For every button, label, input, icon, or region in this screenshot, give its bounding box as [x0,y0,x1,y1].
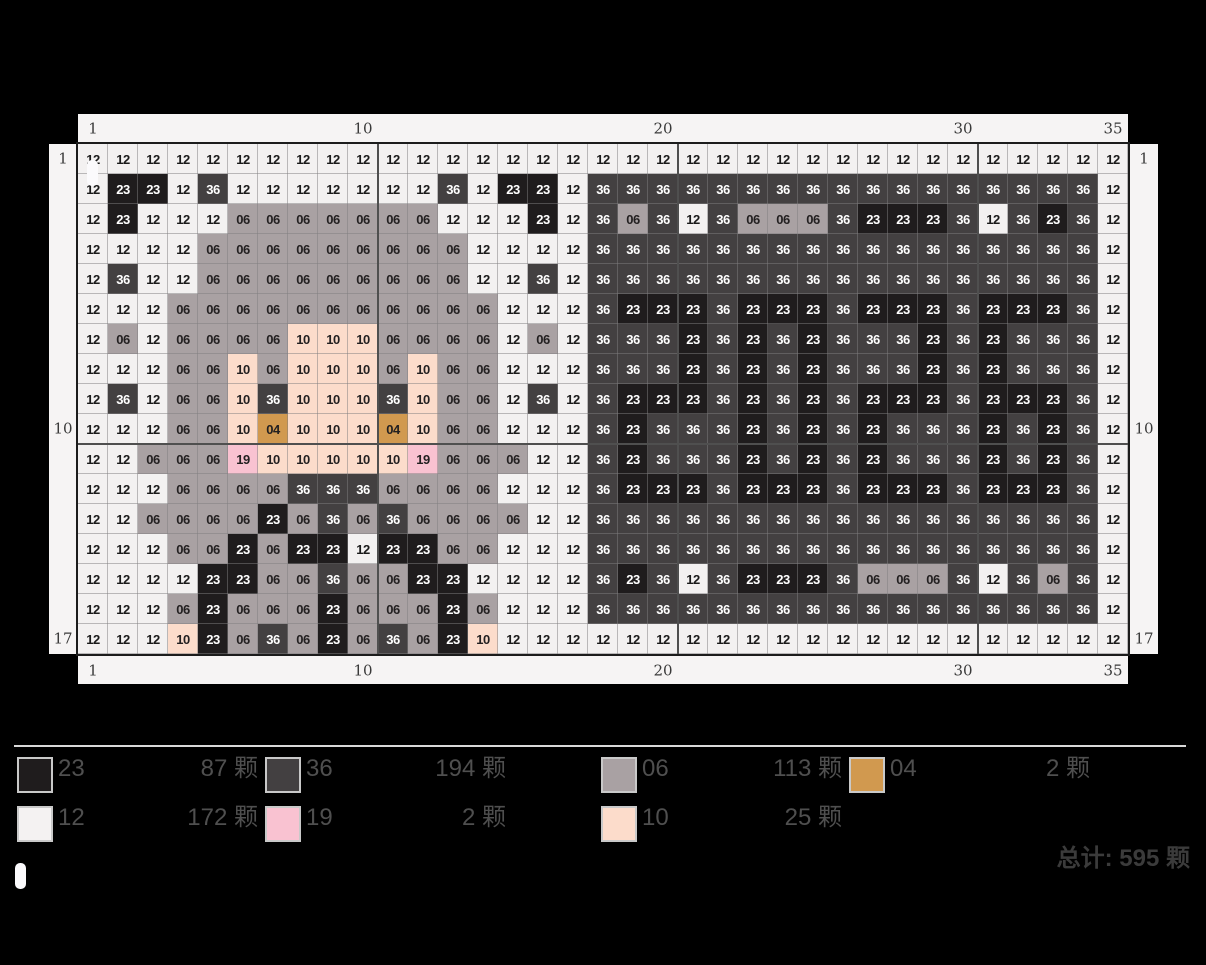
bead-cell[interactable]: 06 [138,444,168,474]
bead-cell[interactable]: 12 [888,624,918,654]
bead-cell[interactable]: 06 [168,504,198,534]
bead-cell[interactable]: 36 [888,534,918,564]
bead-cell[interactable]: 23 [888,384,918,414]
bead-cell[interactable]: 12 [198,204,228,234]
legend-swatch-19[interactable] [265,806,301,842]
bead-cell[interactable]: 12 [108,354,138,384]
bead-cell[interactable]: 36 [378,624,408,654]
bead-cell[interactable]: 23 [1038,294,1068,324]
bead-cell[interactable]: 36 [798,594,828,624]
bead-cell[interactable]: 06 [318,234,348,264]
bead-cell[interactable]: 36 [618,534,648,564]
bead-cell[interactable]: 12 [498,204,528,234]
bead-cell[interactable]: 12 [78,534,108,564]
bead-cell[interactable]: 23 [768,294,798,324]
bead-cell[interactable]: 23 [1038,384,1068,414]
bead-cell[interactable]: 12 [558,594,588,624]
bead-cell[interactable]: 06 [468,474,498,504]
bead-cell[interactable]: 36 [1038,324,1068,354]
bead-cell[interactable]: 23 [738,444,768,474]
bead-cell[interactable]: 06 [768,204,798,234]
bead-cell[interactable]: 06 [288,594,318,624]
bead-cell[interactable]: 12 [288,174,318,204]
bead-cell[interactable]: 12 [948,624,978,654]
bead-cell[interactable]: 36 [708,504,738,534]
bead-cell[interactable]: 12 [528,414,558,444]
bead-cell[interactable]: 12 [558,264,588,294]
bead-cell[interactable]: 12 [498,384,528,414]
bead-cell[interactable]: 12 [318,144,348,174]
bead-cell[interactable]: 12 [1098,504,1128,534]
bead-cell[interactable]: 12 [528,354,558,384]
bead-cell[interactable]: 12 [528,564,558,594]
bead-cell[interactable]: 36 [948,204,978,234]
bead-cell[interactable]: 23 [858,384,888,414]
bead-cell[interactable]: 12 [1068,144,1098,174]
bead-cell[interactable]: 06 [468,594,498,624]
bead-cell[interactable]: 36 [1068,504,1098,534]
bead-cell[interactable]: 06 [198,474,228,504]
bead-cell[interactable]: 23 [798,294,828,324]
bead-cell[interactable]: 06 [228,474,258,504]
bead-cell[interactable]: 36 [738,234,768,264]
bead-cell[interactable]: 12 [528,474,558,504]
bead-cell[interactable]: 12 [498,564,528,594]
bead-cell[interactable]: 36 [588,444,618,474]
bead-cell[interactable]: 06 [258,534,288,564]
bead-cell[interactable]: 06 [438,324,468,354]
bead-cell[interactable]: 06 [258,234,288,264]
bead-cell[interactable]: 06 [198,384,228,414]
bead-cell[interactable]: 06 [438,444,468,474]
bead-cell[interactable]: 23 [528,204,558,234]
bead-cell[interactable]: 06 [318,204,348,234]
bead-cell[interactable]: 36 [618,354,648,384]
bead-cell[interactable]: 10 [408,354,438,384]
bead-cell[interactable]: 36 [1008,324,1038,354]
bead-cell[interactable]: 12 [558,144,588,174]
bead-cell[interactable]: 12 [78,204,108,234]
bead-cell[interactable]: 23 [678,474,708,504]
bead-cell[interactable]: 06 [408,474,438,504]
bead-cell[interactable]: 06 [228,234,258,264]
bead-cell[interactable]: 06 [378,354,408,384]
bead-cell[interactable]: 12 [858,144,888,174]
bead-cell[interactable]: 06 [498,504,528,534]
bead-cell[interactable]: 36 [1068,564,1098,594]
bead-cell[interactable]: 06 [288,234,318,264]
bead-cell[interactable]: 06 [438,474,468,504]
bead-cell[interactable]: 23 [648,474,678,504]
bead-cell[interactable]: 12 [528,294,558,324]
bead-cell[interactable]: 06 [258,264,288,294]
bead-cell[interactable]: 10 [348,384,378,414]
bead-cell[interactable]: 23 [678,294,708,324]
bead-cell[interactable]: 12 [858,624,888,654]
bead-cell[interactable]: 06 [798,204,828,234]
bead-cell[interactable]: 36 [888,354,918,384]
bead-cell[interactable]: 23 [798,324,828,354]
bead-cell[interactable]: 23 [198,594,228,624]
bead-cell[interactable]: 12 [408,174,438,204]
bead-cell[interactable]: 36 [918,534,948,564]
bead-cell[interactable]: 36 [588,354,618,384]
bead-cell[interactable]: 12 [438,204,468,234]
bead-cell[interactable]: 12 [78,384,108,414]
bead-cell[interactable]: 36 [948,534,978,564]
bead-cell[interactable]: 12 [138,264,168,294]
bead-cell[interactable]: 06 [348,294,378,324]
bead-cell[interactable]: 06 [228,594,258,624]
bead-cell[interactable]: 12 [78,624,108,654]
bead-cell[interactable]: 12 [138,384,168,414]
bead-cell[interactable]: 36 [768,594,798,624]
bead-cell[interactable]: 12 [1098,444,1128,474]
bead-cell[interactable]: 12 [498,414,528,444]
bead-cell[interactable]: 36 [1008,414,1038,444]
bead-cell[interactable]: 23 [1008,384,1038,414]
bead-cell[interactable]: 36 [678,414,708,444]
bead-cell[interactable]: 36 [768,504,798,534]
bead-cell[interactable]: 36 [678,534,708,564]
bead-cell[interactable]: 36 [708,264,738,294]
bead-cell[interactable]: 12 [288,144,318,174]
bead-cell[interactable]: 36 [948,234,978,264]
bead-cell[interactable]: 23 [978,294,1008,324]
bead-cell[interactable]: 23 [738,324,768,354]
bead-cell[interactable]: 06 [468,354,498,384]
bead-cell[interactable]: 12 [648,624,678,654]
bead-cell[interactable]: 12 [528,504,558,534]
bead-cell[interactable]: 36 [1068,174,1098,204]
bead-cell[interactable]: 36 [678,504,708,534]
bead-cell[interactable]: 36 [948,444,978,474]
bead-cell[interactable]: 10 [288,444,318,474]
bead-cell[interactable]: 12 [348,144,378,174]
bead-cell[interactable]: 36 [258,624,288,654]
bead-cell[interactable]: 06 [438,384,468,414]
bead-cell[interactable]: 36 [738,594,768,624]
bead-cell[interactable]: 06 [528,324,558,354]
bead-cell[interactable]: 36 [1068,294,1098,324]
bead-cell[interactable]: 36 [738,504,768,534]
bead-cell[interactable]: 36 [768,324,798,354]
bead-cell[interactable]: 36 [648,444,678,474]
bead-cell[interactable]: 10 [318,444,348,474]
bead-cell[interactable]: 06 [348,234,378,264]
bead-cell[interactable]: 23 [978,474,1008,504]
bead-cell[interactable]: 12 [1098,384,1128,414]
bead-cell[interactable]: 36 [1068,444,1098,474]
bead-cell[interactable]: 23 [318,534,348,564]
bead-cell[interactable]: 36 [858,354,888,384]
bead-cell[interactable]: 23 [138,174,168,204]
legend-swatch-36[interactable] [265,757,301,793]
legend-swatch-06[interactable] [601,757,637,793]
bead-cell[interactable]: 23 [108,204,138,234]
bead-cell[interactable]: 23 [858,294,888,324]
bead-cell[interactable]: 23 [678,384,708,414]
bead-cell[interactable]: 36 [318,564,348,594]
bead-cell[interactable]: 10 [168,624,198,654]
bead-cell[interactable]: 06 [498,444,528,474]
bead-cell[interactable]: 06 [858,564,888,594]
bead-cell[interactable]: 06 [438,354,468,384]
bead-cell[interactable]: 12 [168,564,198,594]
bead-cell[interactable]: 36 [648,174,678,204]
bead-cell[interactable]: 12 [648,144,678,174]
bead-cell[interactable]: 06 [918,564,948,594]
bead-cell[interactable]: 36 [258,384,288,414]
bead-cell[interactable]: 36 [648,264,678,294]
bead-cell[interactable]: 12 [468,174,498,204]
bead-cell[interactable]: 12 [1038,624,1068,654]
bead-cell[interactable]: 06 [468,504,498,534]
bead-cell[interactable]: 12 [558,534,588,564]
bead-cell[interactable]: 23 [768,564,798,594]
bead-cell[interactable]: 12 [498,624,528,654]
bead-cell[interactable]: 12 [618,624,648,654]
bead-cell[interactable]: 36 [1008,564,1038,594]
bead-cell[interactable]: 36 [438,174,468,204]
bead-cell[interactable]: 12 [558,444,588,474]
bead-cell[interactable]: 36 [528,264,558,294]
bead-cell[interactable]: 36 [888,324,918,354]
bead-cell[interactable]: 06 [168,294,198,324]
bead-cell[interactable]: 12 [1098,324,1128,354]
bead-cell[interactable]: 12 [1008,624,1038,654]
bead-cell[interactable]: 06 [258,474,288,504]
bead-cell[interactable]: 06 [198,534,228,564]
bead-cell[interactable]: 12 [108,594,138,624]
bead-cell[interactable]: 12 [558,174,588,204]
bead-cell[interactable]: 06 [168,384,198,414]
bead-cell[interactable]: 06 [738,204,768,234]
bead-cell[interactable]: 12 [468,144,498,174]
bead-cell[interactable]: 12 [768,144,798,174]
bead-cell[interactable]: 06 [378,594,408,624]
bead-cell[interactable]: 12 [948,144,978,174]
bead-cell[interactable]: 06 [198,354,228,384]
bead-cell[interactable]: 06 [228,264,258,294]
bead-cell[interactable]: 06 [408,624,438,654]
bead-cell[interactable]: 12 [1098,564,1128,594]
bead-cell[interactable]: 12 [1038,144,1068,174]
bead-cell[interactable]: 36 [828,474,858,504]
bead-cell[interactable]: 06 [618,204,648,234]
bead-cell[interactable]: 06 [258,294,288,324]
bead-cell[interactable]: 06 [228,324,258,354]
bead-cell[interactable]: 12 [528,594,558,624]
bead-cell[interactable]: 10 [348,354,378,384]
bead-cell[interactable]: 23 [978,354,1008,384]
bead-cell[interactable]: 06 [198,414,228,444]
bead-cell[interactable]: 36 [888,444,918,474]
bead-cell[interactable]: 23 [978,414,1008,444]
bead-cell[interactable]: 36 [768,414,798,444]
bead-cell[interactable]: 12 [738,144,768,174]
bead-cell[interactable]: 36 [918,174,948,204]
bead-cell[interactable]: 23 [438,564,468,594]
bead-cell[interactable]: 12 [558,294,588,324]
bead-cell[interactable]: 23 [618,474,648,504]
bead-cell[interactable]: 06 [378,264,408,294]
bead-cell[interactable]: 36 [828,174,858,204]
bead-cell[interactable]: 36 [918,414,948,444]
bead-cell[interactable]: 36 [768,354,798,384]
bead-cell[interactable]: 36 [948,504,978,534]
bead-cell[interactable]: 36 [588,414,618,444]
bead-cell[interactable]: 12 [498,264,528,294]
bead-cell[interactable]: 12 [138,534,168,564]
bead-cell[interactable]: 06 [408,504,438,534]
bead-cell[interactable]: 06 [348,264,378,294]
bead-cell[interactable]: 36 [588,324,618,354]
bead-cell[interactable]: 12 [138,324,168,354]
bead-cell[interactable]: 36 [1068,594,1098,624]
bead-cell[interactable]: 10 [288,414,318,444]
bead-cell[interactable]: 36 [528,384,558,414]
bead-cell[interactable]: 23 [288,534,318,564]
bead-cell[interactable]: 36 [768,234,798,264]
bead-cell[interactable]: 23 [618,564,648,594]
bead-cell[interactable]: 12 [78,294,108,324]
bead-cell[interactable]: 36 [1068,204,1098,234]
bead-cell[interactable]: 12 [558,414,588,444]
bead-cell[interactable]: 36 [648,504,678,534]
bead-cell[interactable]: 12 [198,144,228,174]
bead-cell[interactable]: 12 [168,204,198,234]
bead-cell[interactable]: 12 [588,144,618,174]
bead-cell[interactable]: 36 [828,504,858,534]
bead-cell[interactable]: 36 [618,174,648,204]
bead-cell[interactable]: 19 [228,444,258,474]
bead-cell[interactable]: 12 [468,234,498,264]
bead-cell[interactable]: 06 [198,504,228,534]
bead-cell[interactable]: 12 [78,504,108,534]
bead-cell[interactable]: 23 [738,564,768,594]
bead-cell[interactable]: 12 [468,264,498,294]
bead-cell[interactable]: 12 [1098,414,1128,444]
bead-cell[interactable]: 36 [828,324,858,354]
bead-cell[interactable]: 12 [78,234,108,264]
bead-cell[interactable]: 36 [978,504,1008,534]
bead-cell[interactable]: 06 [438,504,468,534]
bead-cell[interactable]: 36 [1008,174,1038,204]
bead-cell[interactable]: 23 [918,204,948,234]
bead-cell[interactable]: 36 [888,234,918,264]
bead-cell[interactable]: 10 [288,324,318,354]
bead-cell[interactable]: 36 [588,504,618,534]
bead-cell[interactable]: 36 [588,264,618,294]
bead-cell[interactable]: 12 [528,234,558,264]
bead-cell[interactable]: 12 [438,144,468,174]
bead-cell[interactable]: 06 [288,624,318,654]
bead-cell[interactable]: 36 [648,324,678,354]
bead-cell[interactable]: 23 [738,474,768,504]
bead-cell[interactable]: 36 [318,474,348,504]
bead-cell[interactable]: 23 [1038,444,1068,474]
bead-cell[interactable]: 06 [228,294,258,324]
bead-cell[interactable]: 12 [828,624,858,654]
bead-cell[interactable]: 06 [1038,564,1068,594]
bead-cell[interactable]: 12 [78,324,108,354]
bead-cell[interactable]: 12 [108,534,138,564]
bead-cell[interactable]: 12 [978,624,1008,654]
bead-cell[interactable]: 12 [498,354,528,384]
bead-cell[interactable]: 23 [198,624,228,654]
bead-cell[interactable]: 06 [258,564,288,594]
bead-cell[interactable]: 06 [168,354,198,384]
bead-cell[interactable]: 23 [498,174,528,204]
bead-cell[interactable]: 12 [108,294,138,324]
bead-cell[interactable]: 06 [288,504,318,534]
bead-cell[interactable]: 06 [378,324,408,354]
bead-cell[interactable]: 12 [78,414,108,444]
bead-cell[interactable]: 36 [1038,174,1068,204]
bead-cell[interactable]: 36 [1038,264,1068,294]
bead-cell[interactable]: 06 [408,594,438,624]
bead-cell[interactable]: 36 [708,414,738,444]
bead-cell[interactable]: 36 [858,324,888,354]
bead-cell[interactable]: 36 [378,504,408,534]
bead-cell[interactable]: 12 [678,144,708,174]
bead-cell[interactable]: 36 [1008,204,1038,234]
bead-cell[interactable]: 36 [798,174,828,204]
bead-cell[interactable]: 06 [228,624,258,654]
bead-cell[interactable]: 36 [678,174,708,204]
bead-cell[interactable]: 36 [618,324,648,354]
bead-cell[interactable]: 23 [1008,474,1038,504]
bead-cell[interactable]: 36 [948,324,978,354]
bead-cell[interactable]: 06 [468,294,498,324]
bead-cell[interactable]: 12 [228,144,258,174]
bead-cell[interactable]: 12 [78,354,108,384]
bead-cell[interactable]: 36 [798,534,828,564]
bead-cell[interactable]: 23 [1038,474,1068,504]
bead-cell[interactable]: 12 [408,144,438,174]
bead-cell[interactable]: 06 [468,414,498,444]
bead-cell[interactable]: 23 [528,174,558,204]
bead-cell[interactable]: 36 [648,234,678,264]
bead-cell[interactable]: 36 [618,594,648,624]
bead-cell[interactable]: 36 [708,534,738,564]
bead-cell[interactable]: 12 [468,204,498,234]
bead-cell[interactable]: 36 [1068,234,1098,264]
bead-cell[interactable]: 36 [828,354,858,384]
bead-cell[interactable]: 12 [348,174,378,204]
bead-cell[interactable]: 12 [618,144,648,174]
bead-cell[interactable]: 36 [858,264,888,294]
bead-cell[interactable]: 23 [978,444,1008,474]
bead-cell[interactable]: 36 [888,174,918,204]
bead-cell[interactable]: 23 [618,384,648,414]
bead-cell[interactable]: 06 [348,564,378,594]
bead-cell[interactable]: 12 [78,264,108,294]
bead-cell[interactable]: 36 [948,564,978,594]
bead-cell[interactable]: 23 [438,624,468,654]
bead-cell[interactable]: 36 [828,384,858,414]
bead-cell[interactable]: 12 [498,324,528,354]
bead-cell[interactable]: 36 [978,594,1008,624]
bead-cell[interactable]: 10 [228,414,258,444]
bead-cell[interactable]: 06 [438,234,468,264]
bead-cell[interactable]: 12 [528,444,558,474]
bead-cell[interactable]: 10 [288,354,318,384]
bead-cell[interactable]: 06 [258,324,288,354]
bead-cell[interactable]: 36 [858,174,888,204]
bead-cell[interactable]: 06 [228,204,258,234]
